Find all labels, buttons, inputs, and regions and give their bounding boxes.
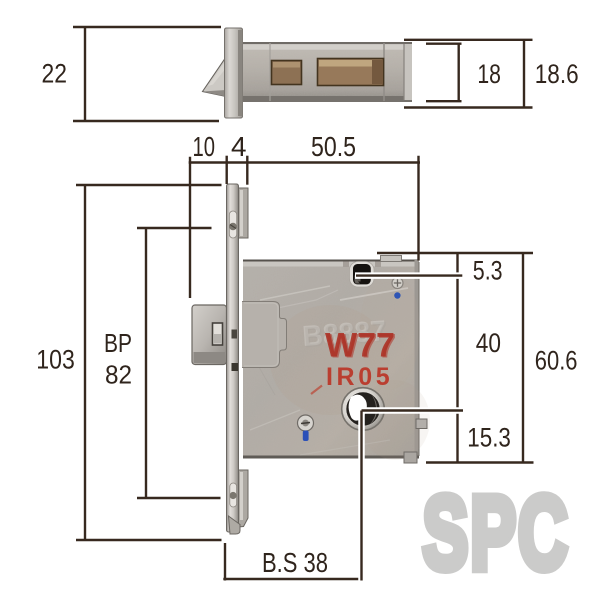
svg-text:10: 10 [193, 131, 216, 162]
svg-text:5.3: 5.3 [473, 256, 503, 286]
svg-text:W77: W77 [325, 327, 395, 365]
svg-text:SPC: SPC [423, 474, 570, 591]
svg-text:82: 82 [105, 360, 132, 390]
svg-text:18.6: 18.6 [535, 59, 579, 89]
svg-text:BP: BP [104, 328, 132, 358]
svg-text:18: 18 [477, 59, 501, 89]
svg-text:60.6: 60.6 [535, 346, 578, 376]
svg-text:50.5: 50.5 [311, 131, 356, 162]
svg-text:15.3: 15.3 [467, 423, 511, 453]
svg-text:40: 40 [476, 328, 501, 358]
svg-text:103: 103 [36, 345, 75, 375]
svg-text:IR05: IR05 [326, 363, 393, 391]
svg-text:4: 4 [231, 131, 247, 162]
svg-text:22: 22 [42, 59, 68, 89]
svg-text:B.S 38: B.S 38 [262, 547, 328, 578]
